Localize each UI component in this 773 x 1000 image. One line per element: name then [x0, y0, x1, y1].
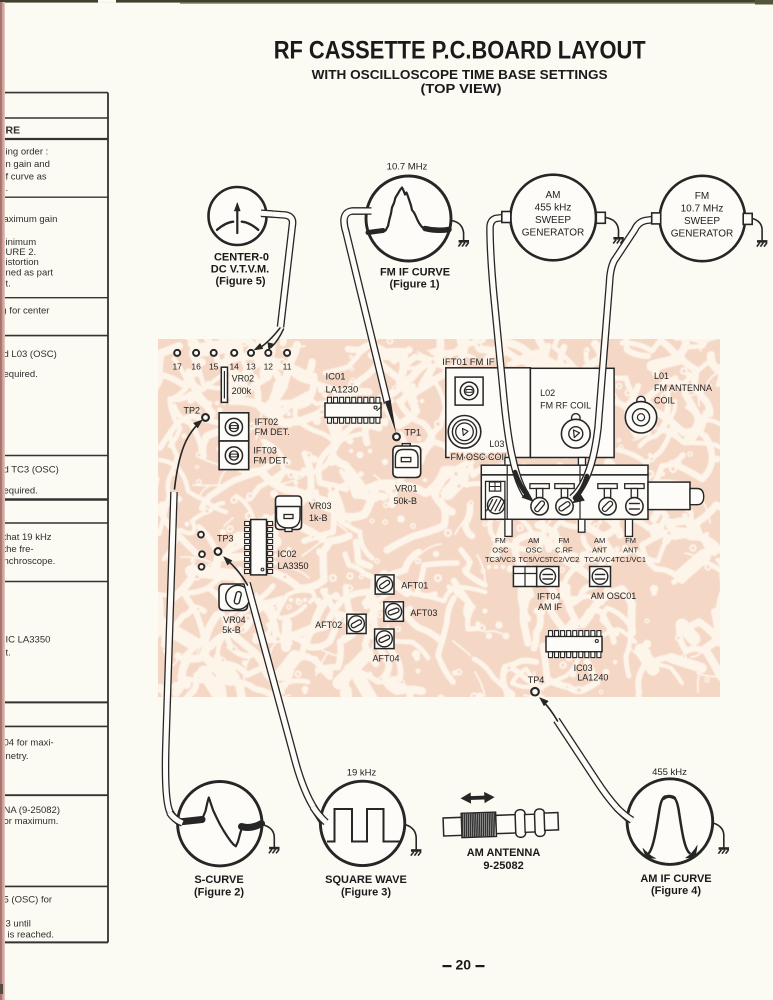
svg-text:OSC: OSC — [492, 546, 509, 555]
svg-text:FM RF COIL: FM RF COIL — [540, 401, 591, 411]
svg-text:ANT: ANT — [592, 546, 607, 555]
svg-text:50k-B: 50k-B — [394, 496, 418, 506]
svg-text:GENERATOR: GENERATOR — [522, 228, 584, 239]
svg-text:t.: t. — [6, 278, 11, 289]
svg-text:equired.: equired. — [4, 369, 38, 380]
svg-text:TP1: TP1 — [405, 428, 422, 438]
svg-text:14: 14 — [229, 361, 239, 371]
svg-text:(Figure 1): (Figure 1) — [389, 279, 439, 291]
svg-text:04 for maxi-: 04 for maxi- — [4, 738, 54, 749]
svg-text:LA3350: LA3350 — [278, 561, 309, 571]
svg-text:istortion: istortion — [6, 257, 39, 268]
svg-text:AFT01: AFT01 — [401, 581, 428, 591]
svg-text:the fre-: the fre- — [4, 544, 34, 555]
svg-text:12: 12 — [264, 361, 274, 371]
svg-text:TC2/VC2: TC2/VC2 — [548, 555, 579, 564]
svg-text:n gain and: n gain and — [6, 159, 50, 170]
svg-text:(Figure 2): (Figure 2) — [194, 887, 244, 899]
svg-text:WITH OSCILLOSCOPE TIME BASE SE: WITH OSCILLOSCOPE TIME BASE SETTINGS — [312, 67, 608, 82]
svg-text:IFT01 FM IF: IFT01 FM IF — [442, 357, 494, 368]
svg-text:19 kHz: 19 kHz — [347, 768, 377, 779]
svg-text:455 kHz: 455 kHz — [652, 767, 687, 778]
svg-text:(Figure 3): (Figure 3) — [341, 887, 391, 899]
svg-text:equired.: equired. — [4, 485, 38, 496]
svg-text:SWEEP: SWEEP — [684, 216, 720, 227]
svg-text:ing order :: ing order : — [6, 147, 49, 158]
svg-text:FM IF CURVE: FM IF CURVE — [380, 267, 450, 279]
svg-text:is reached.: is reached. — [8, 930, 54, 941]
svg-text:t.: t. — [6, 647, 11, 658]
svg-text:SWEEP: SWEEP — [535, 215, 571, 226]
svg-text:(Figure 4): (Figure 4) — [651, 885, 701, 897]
svg-text:IC LA3350: IC LA3350 — [6, 635, 51, 646]
svg-text:AFT03: AFT03 — [410, 608, 437, 618]
svg-text:GENERATOR: GENERATOR — [671, 229, 733, 240]
svg-text:L01: L01 — [654, 371, 669, 381]
svg-text:RE: RE — [6, 125, 21, 137]
svg-text:FM DET.: FM DET. — [255, 427, 290, 437]
svg-text:IC03: IC03 — [574, 663, 593, 673]
svg-text:5k-B: 5k-B — [222, 625, 241, 635]
svg-text:NA (9-25082): NA (9-25082) — [4, 805, 61, 816]
svg-text:OSC: OSC — [526, 546, 543, 555]
svg-text:or maximum.: or maximum. — [4, 816, 59, 827]
svg-text:FM OSC COIL: FM OSC COIL — [451, 452, 510, 462]
svg-text:17: 17 — [172, 361, 182, 371]
svg-text:AM IF: AM IF — [538, 602, 563, 612]
svg-text:AM IF CURVE: AM IF CURVE — [640, 873, 711, 885]
svg-text:C.RF: C.RF — [555, 546, 573, 555]
svg-text:AFT04: AFT04 — [372, 654, 399, 664]
svg-text:FM DET.: FM DET. — [253, 456, 288, 466]
svg-text:13: 13 — [246, 361, 256, 371]
svg-text:TP2: TP2 — [184, 405, 201, 415]
svg-text:FM: FM — [495, 536, 506, 545]
svg-text:IFT03: IFT03 — [253, 446, 277, 456]
svg-text:COIL: COIL — [654, 395, 675, 405]
svg-text:16: 16 — [191, 361, 201, 371]
svg-text:that 19 kHz: that 19 kHz — [4, 532, 52, 543]
svg-text:DC V.T.V.M.: DC V.T.V.M. — [211, 263, 270, 275]
svg-text:TC4/VC4: TC4/VC4 — [584, 555, 615, 564]
svg-text:RF CASSETTE P.C.BOARD LAYOUT: RF CASSETTE P.C.BOARD LAYOUT — [274, 37, 646, 65]
svg-text:IFT02: IFT02 — [255, 417, 279, 427]
svg-text:11: 11 — [283, 361, 292, 371]
svg-text:TC5/VC5: TC5/VC5 — [518, 555, 549, 564]
svg-text:ANT: ANT — [623, 546, 638, 555]
svg-text:nchroscope.: nchroscope. — [4, 556, 56, 567]
svg-text:L03: L03 — [489, 439, 504, 449]
svg-text:FM: FM — [695, 191, 709, 202]
svg-text:LA1240: LA1240 — [577, 673, 608, 683]
svg-text:CENTER-0: CENTER-0 — [214, 251, 269, 263]
svg-text:200k: 200k — [232, 386, 252, 396]
svg-text:f curve as: f curve as — [6, 171, 47, 182]
svg-text:d L03 (OSC): d L03 (OSC) — [4, 349, 57, 360]
svg-text:IFT04: IFT04 — [537, 592, 561, 602]
svg-text:455 kHz: 455 kHz — [535, 203, 572, 214]
svg-text:10.7 MHz: 10.7 MHz — [681, 204, 724, 215]
svg-text:LA1230: LA1230 — [326, 385, 359, 396]
svg-text:10.7 MHz: 10.7 MHz — [387, 162, 428, 173]
svg-text:TC1/VC1: TC1/VC1 — [615, 555, 646, 564]
svg-text:IC02: IC02 — [278, 549, 297, 559]
svg-text:d TC3 (OSC): d TC3 (OSC) — [4, 464, 59, 475]
svg-text:TP3: TP3 — [217, 534, 234, 544]
svg-text:(TOP VIEW): (TOP VIEW) — [421, 82, 502, 96]
svg-text:1k-B: 1k-B — [309, 513, 328, 523]
svg-text:20: 20 — [456, 956, 472, 972]
svg-text:netry.: netry. — [6, 751, 29, 762]
svg-text:VR03: VR03 — [309, 501, 332, 511]
svg-text:3 until: 3 until — [6, 919, 31, 930]
svg-text:FM: FM — [625, 536, 636, 545]
svg-text:AM OSC01: AM OSC01 — [591, 591, 637, 601]
svg-text:FM ANTENNA: FM ANTENNA — [654, 383, 712, 393]
svg-text:.: . — [6, 183, 9, 194]
svg-text:AM: AM — [546, 190, 561, 201]
svg-text:FM: FM — [558, 536, 569, 545]
svg-text:) for center: ) for center — [4, 306, 50, 317]
svg-text:VR01: VR01 — [395, 483, 418, 493]
svg-text:AM: AM — [528, 536, 539, 545]
svg-text:VR04: VR04 — [223, 615, 246, 625]
svg-text:(Figure 5): (Figure 5) — [215, 275, 265, 287]
svg-text:9-25082: 9-25082 — [483, 860, 523, 872]
svg-text:aximum gain: aximum gain — [4, 214, 58, 225]
svg-text:AM ANTENNA: AM ANTENNA — [467, 847, 541, 859]
svg-text:ned as part: ned as part — [6, 268, 54, 279]
svg-text:15: 15 — [209, 361, 219, 371]
svg-text:TP4: TP4 — [528, 675, 545, 685]
svg-text:AFT02: AFT02 — [315, 620, 342, 630]
svg-text:VR02: VR02 — [232, 374, 255, 384]
svg-text:5 (OSC) for: 5 (OSC) for — [4, 895, 53, 906]
svg-text:AM: AM — [594, 536, 605, 545]
svg-text:S-CURVE: S-CURVE — [194, 874, 243, 886]
svg-text:TC3/VC3: TC3/VC3 — [485, 555, 516, 564]
svg-text:L02: L02 — [540, 388, 555, 398]
svg-text:SQUARE WAVE: SQUARE WAVE — [325, 874, 407, 886]
svg-text:IC01: IC01 — [326, 372, 346, 383]
